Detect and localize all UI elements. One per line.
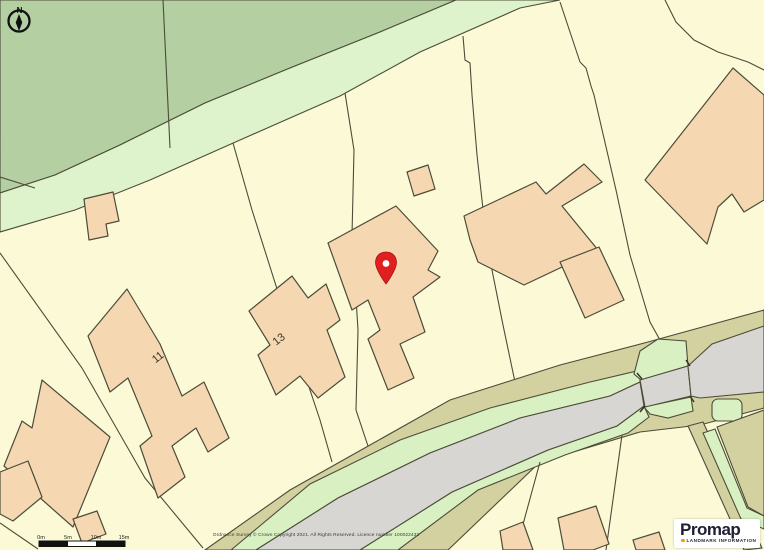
parcel-boundary [606,435,622,550]
building-13 [249,276,345,398]
map-viewport[interactable]: 11 13 N 0m 5m 10m 15m Ordnance Survey © … [0,0,764,550]
copyright-text: Ordnance Survey © Crown Copyright 2021. … [176,533,456,538]
building-top-right [645,68,764,244]
promap-logo: Promap LANDMARK INFORMATION [674,519,760,548]
building-below-road-2 [558,506,609,550]
building-11 [88,289,229,498]
scale-label-10: 10m [91,535,102,541]
landmark-dot-icon [681,539,685,543]
outbuilding-above-target [407,165,435,196]
building-below-road-1 [500,522,533,550]
promap-brand-text: Promap [680,521,760,538]
outbuilding-top-left [84,192,119,240]
promap-tagline-text: LANDMARK INFORMATION [687,538,757,543]
map-canvas: 11 13 N 0m 5m 10m 15m [0,0,764,550]
road-grass-strip [712,399,742,421]
scale-label-15: 15m [119,535,130,541]
target-property-building [328,206,440,390]
scale-label-0: 0m [37,535,45,541]
parcel-boundary [665,0,764,70]
scale-label-5: 5m [64,535,72,541]
building-below-road-3 [633,532,665,550]
north-label: N [17,6,23,15]
parcel-boundary [0,523,38,549]
